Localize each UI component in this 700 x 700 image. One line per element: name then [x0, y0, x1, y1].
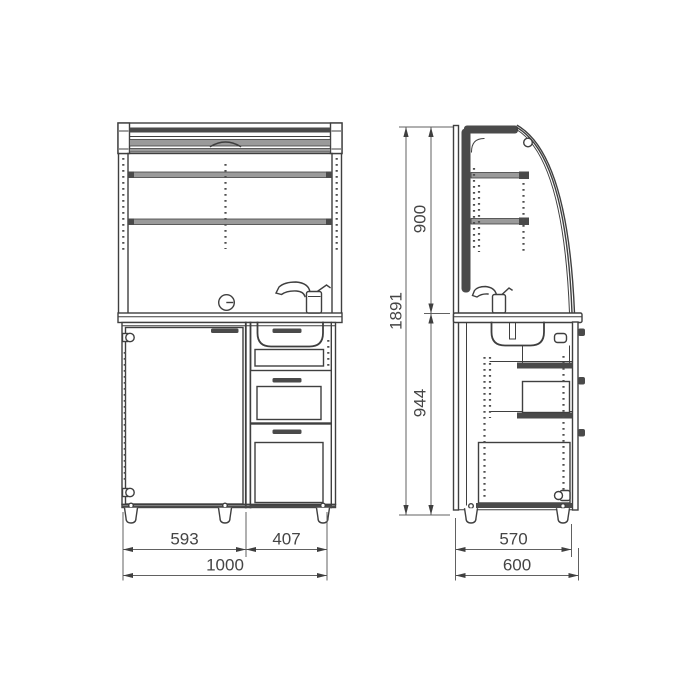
bottom-drawer	[251, 424, 332, 506]
dim-label-total-height: 1891	[387, 292, 406, 330]
handle-knob-top	[578, 329, 585, 337]
faucet-side	[473, 287, 513, 314]
hutch-shelf-upper	[128, 172, 332, 179]
upper-hutch	[119, 154, 342, 314]
hutch-shelf-lower	[128, 219, 332, 226]
side-height-dimensions: 1891 900 944	[387, 127, 454, 515]
drawing-canvas: 593 407 1000 1891 900 944	[0, 0, 700, 700]
front-wall-side	[573, 322, 579, 510]
side-body	[454, 126, 586, 524]
faucet-front	[276, 282, 330, 313]
canopy-pivot	[524, 138, 533, 147]
front-view: 593 407 1000	[118, 123, 342, 581]
side-shelf-upper	[471, 172, 529, 180]
door-hinge-top	[123, 333, 135, 341]
sink-drawer-handle	[273, 329, 302, 334]
side-view: 1891 900 944	[387, 126, 586, 581]
handle-knob-middle	[578, 377, 585, 385]
roller-shutter-housing	[118, 123, 342, 154]
dim-label-drawer-width: 407	[272, 530, 300, 549]
control-knob	[219, 295, 235, 311]
cabinet-door	[123, 328, 244, 505]
dim-label-door-width: 593	[170, 530, 198, 549]
door-handle	[211, 329, 239, 334]
side-depth-dimensions: 570 600	[456, 518, 579, 581]
dim-label-total-depth: 600	[503, 556, 531, 575]
dim-label-lower-height: 944	[411, 389, 430, 417]
cabinet-technical-drawing: 593 407 1000 1891 900 944	[0, 0, 700, 700]
drain-fitting	[555, 334, 567, 343]
base-cabinet-front	[122, 323, 336, 524]
dim-label-total-width: 1000	[206, 556, 244, 575]
handle-knob-bottom	[578, 429, 585, 437]
worktop-front	[118, 313, 342, 323]
dim-label-inner-depth: 570	[499, 530, 527, 549]
middle-drawer	[251, 371, 332, 424]
corner-bracket	[555, 491, 571, 501]
door-hinge-bottom	[123, 488, 135, 496]
bottom-drawer-handle	[273, 430, 302, 435]
middle-drawer-handle	[273, 378, 302, 383]
sink-basin-side	[492, 323, 545, 346]
drawer-sections-side	[467, 323, 573, 506]
dim-label-upper-height: 900	[411, 205, 430, 233]
worktop-side	[454, 313, 583, 323]
